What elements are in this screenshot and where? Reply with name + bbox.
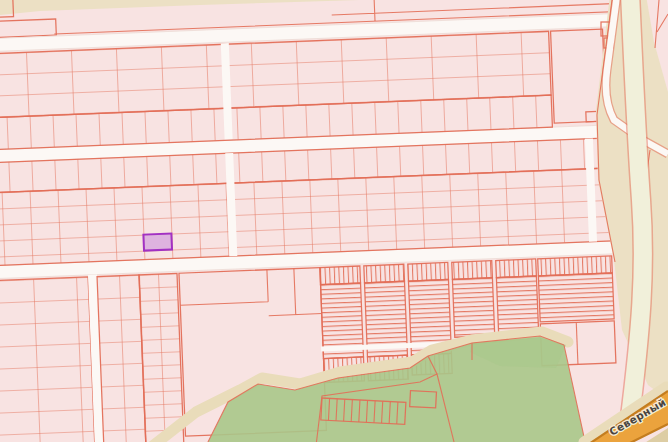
selected-parcel[interactable] [143,234,172,251]
map-svg[interactable]: Северный [0,0,668,442]
map-canvas[interactable]: Северный [0,0,668,442]
